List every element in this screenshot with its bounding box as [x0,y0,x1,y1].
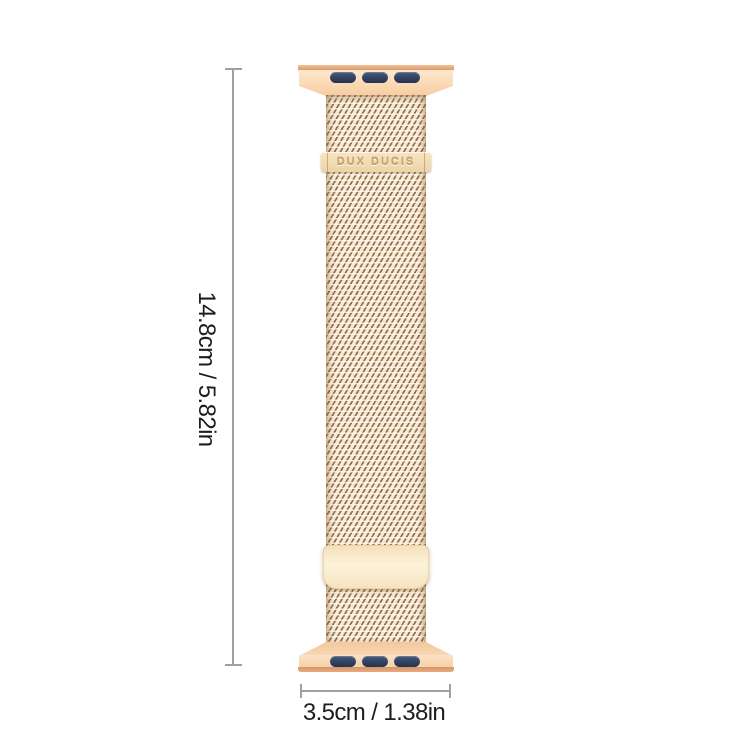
magnetic-clasp-plate [323,545,429,589]
height-dimension-top-tick [225,68,242,70]
height-dimension-label: 14.8cm / 5.82in [192,291,220,446]
bottom-connector-taper [299,642,453,656]
height-dimension-bottom-tick [225,664,242,666]
width-dimension-left-tick [300,684,302,698]
top-connector [299,70,453,86]
width-dimension-line [300,690,451,692]
connector-slot [394,72,420,83]
brand-clasp-bar: DUX DUCIS [321,152,431,172]
connector-slot [394,656,420,667]
bottom-connector-edge [298,667,454,672]
connector-slot [330,72,356,83]
connector-slot [330,656,356,667]
height-dimension-line [232,69,234,666]
connector-slot [362,72,388,83]
product-image: 14.8cm / 5.82in DUX DUCIS 3.5cm / 1. [0,0,750,750]
width-dimension-label: 3.5cm / 1.38in [303,699,445,727]
width-dimension-right-tick [449,684,451,698]
brand-label: DUX DUCIS [337,156,416,168]
connector-slot [362,656,388,667]
